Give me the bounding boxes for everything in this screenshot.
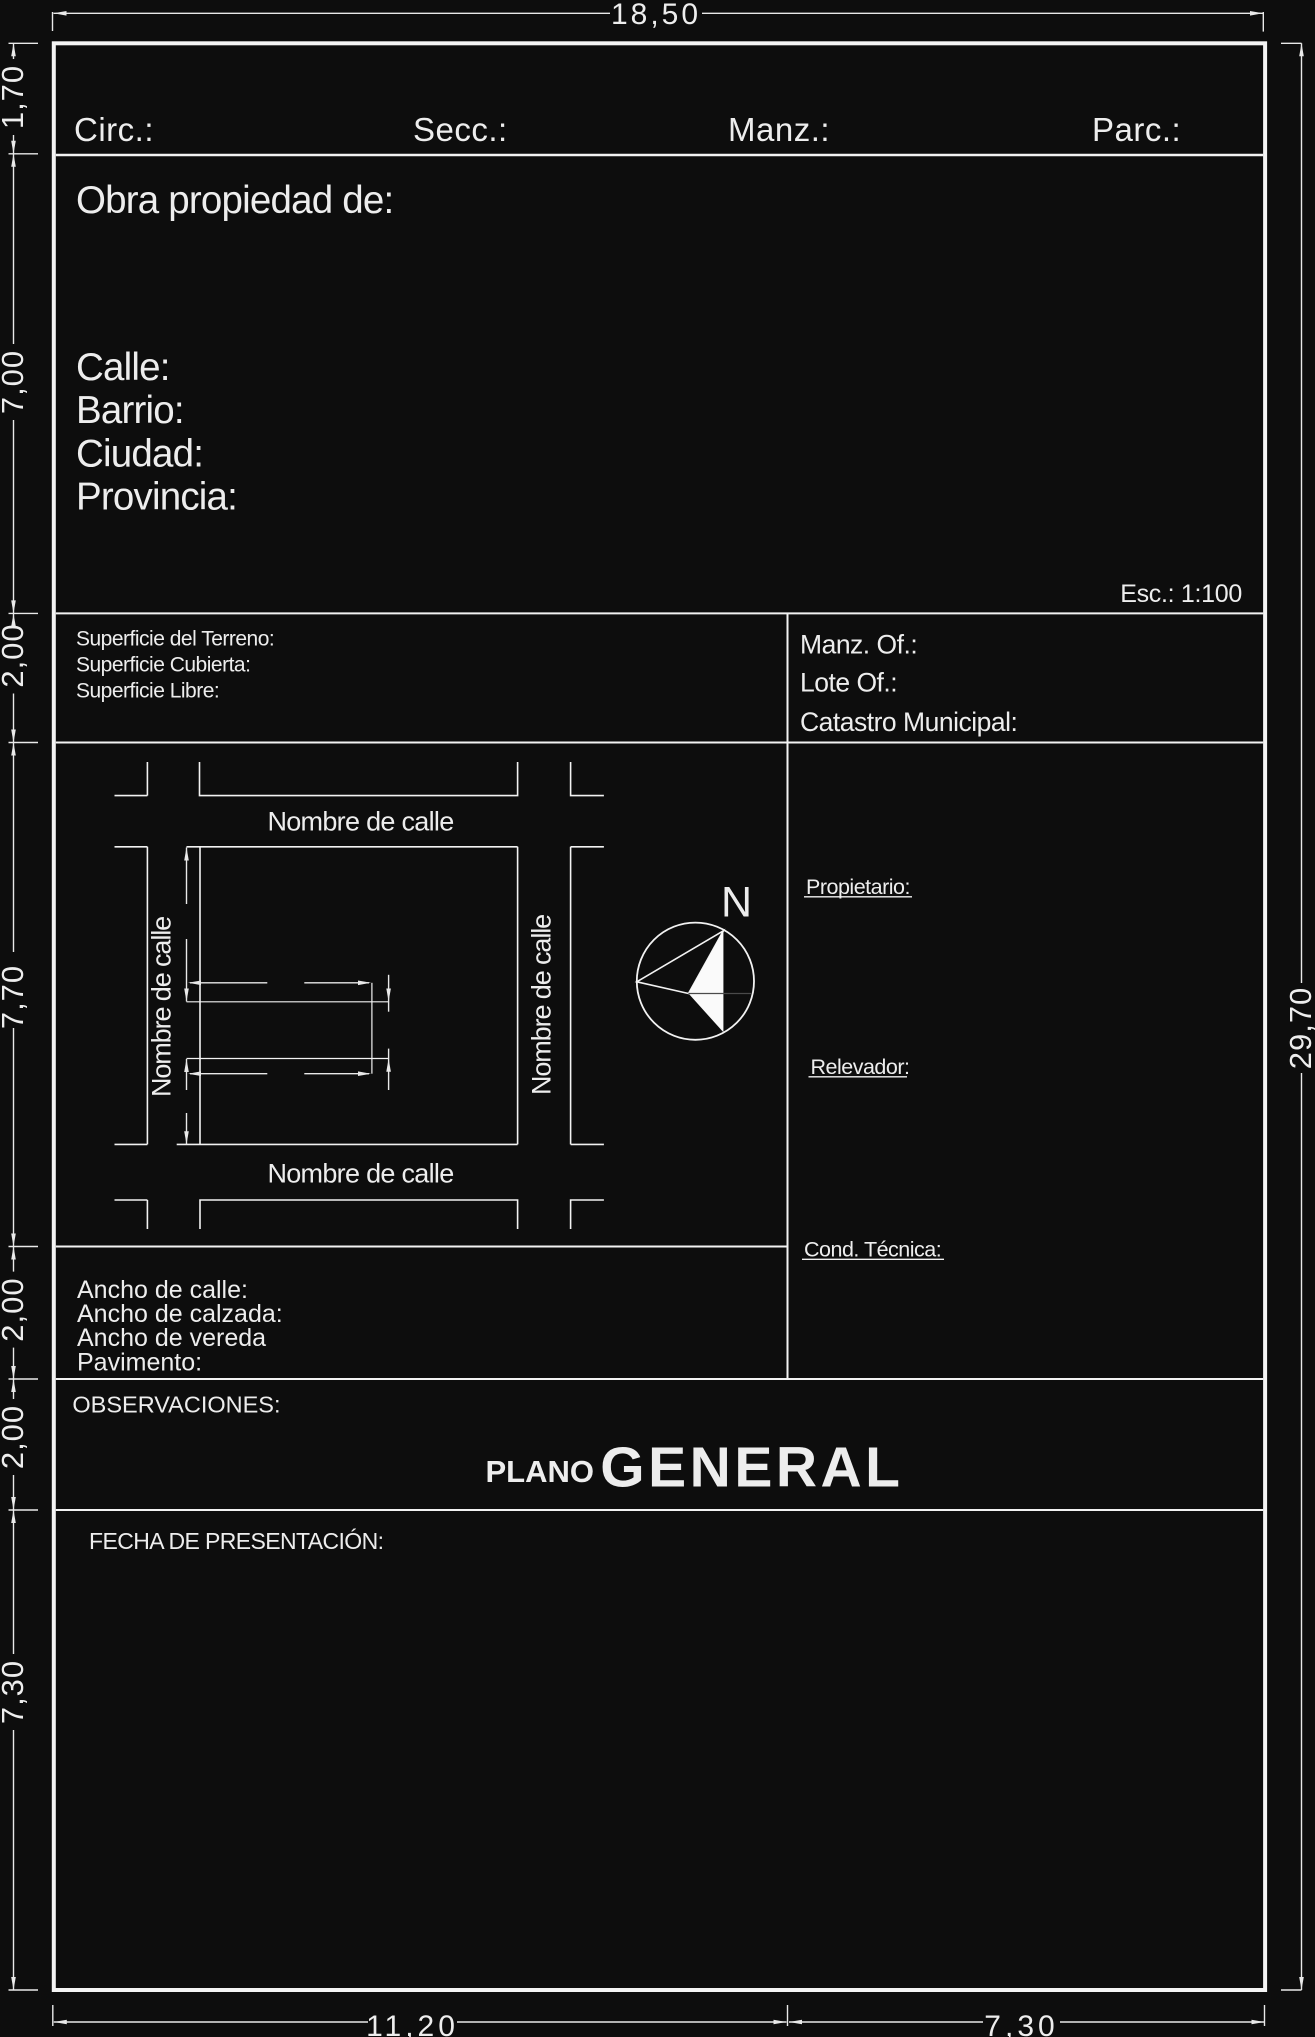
svg-text:Nombre de calle: Nombre de calle [527, 915, 557, 1095]
svg-text:Superficie Cubierta:: Superficie Cubierta: [76, 654, 250, 677]
svg-text:Manz.:: Manz.: [728, 111, 830, 148]
svg-text:FECHA DE PRESENTACIÓN:: FECHA DE PRESENTACIÓN: [89, 1528, 383, 1554]
svg-text:Propietario:: Propietario: [806, 875, 910, 899]
svg-text:Pavimento:: Pavimento: [77, 1348, 202, 1376]
svg-text:7,30: 7,30 [984, 2010, 1058, 2037]
svg-text:Ciudad:: Ciudad: [76, 433, 203, 476]
svg-text:Nombre de calle: Nombre de calle [267, 1159, 453, 1189]
svg-text:Nombre de calle: Nombre de calle [147, 917, 177, 1097]
svg-text:GENERAL: GENERAL [600, 1436, 903, 1500]
svg-text:2,00: 2,00 [0, 623, 30, 687]
svg-text:PLANO: PLANO [486, 1454, 595, 1489]
svg-text:Catastro Municipal:: Catastro Municipal: [800, 707, 1017, 737]
svg-text:2,00: 2,00 [0, 1277, 30, 1341]
svg-text:N: N [721, 879, 752, 927]
svg-text:7,00: 7,00 [0, 350, 30, 414]
svg-text:Calle:: Calle: [76, 346, 170, 389]
svg-text:18,50: 18,50 [611, 0, 701, 31]
svg-text:Relevador:: Relevador: [811, 1055, 910, 1079]
svg-text:7,70: 7,70 [0, 965, 30, 1029]
svg-text:Parc.:: Parc.: [1092, 111, 1181, 148]
svg-text:OBSERVACIONES:: OBSERVACIONES: [72, 1391, 280, 1417]
svg-text:2,00: 2,00 [0, 1405, 30, 1469]
svg-text:11,20: 11,20 [366, 2010, 459, 2037]
svg-text:Esc.: 1:100: Esc.: 1:100 [1120, 580, 1242, 608]
svg-text:Superficie del Terreno:: Superficie del Terreno: [76, 628, 274, 651]
svg-text:Cond. Técnica:: Cond. Técnica: [804, 1238, 941, 1262]
svg-text:Lote Of.:: Lote Of.: [800, 668, 897, 698]
svg-text:Superficie Libre:: Superficie Libre: [76, 680, 219, 703]
svg-text:Circ.:: Circ.: [74, 111, 154, 148]
svg-text:Obra propiedad de:: Obra propiedad de: [76, 179, 393, 222]
svg-text:Barrio:: Barrio: [76, 389, 184, 432]
svg-text:Manz. Of.:: Manz. Of.: [800, 629, 917, 659]
svg-text:Nombre de calle: Nombre de calle [267, 807, 453, 837]
svg-text:29,70: 29,70 [1283, 987, 1315, 1070]
svg-text:7,30: 7,30 [0, 1660, 30, 1724]
svg-text:1,70: 1,70 [0, 65, 30, 129]
svg-text:Provincia:: Provincia: [76, 476, 237, 519]
svg-text:Secc.:: Secc.: [413, 111, 508, 148]
